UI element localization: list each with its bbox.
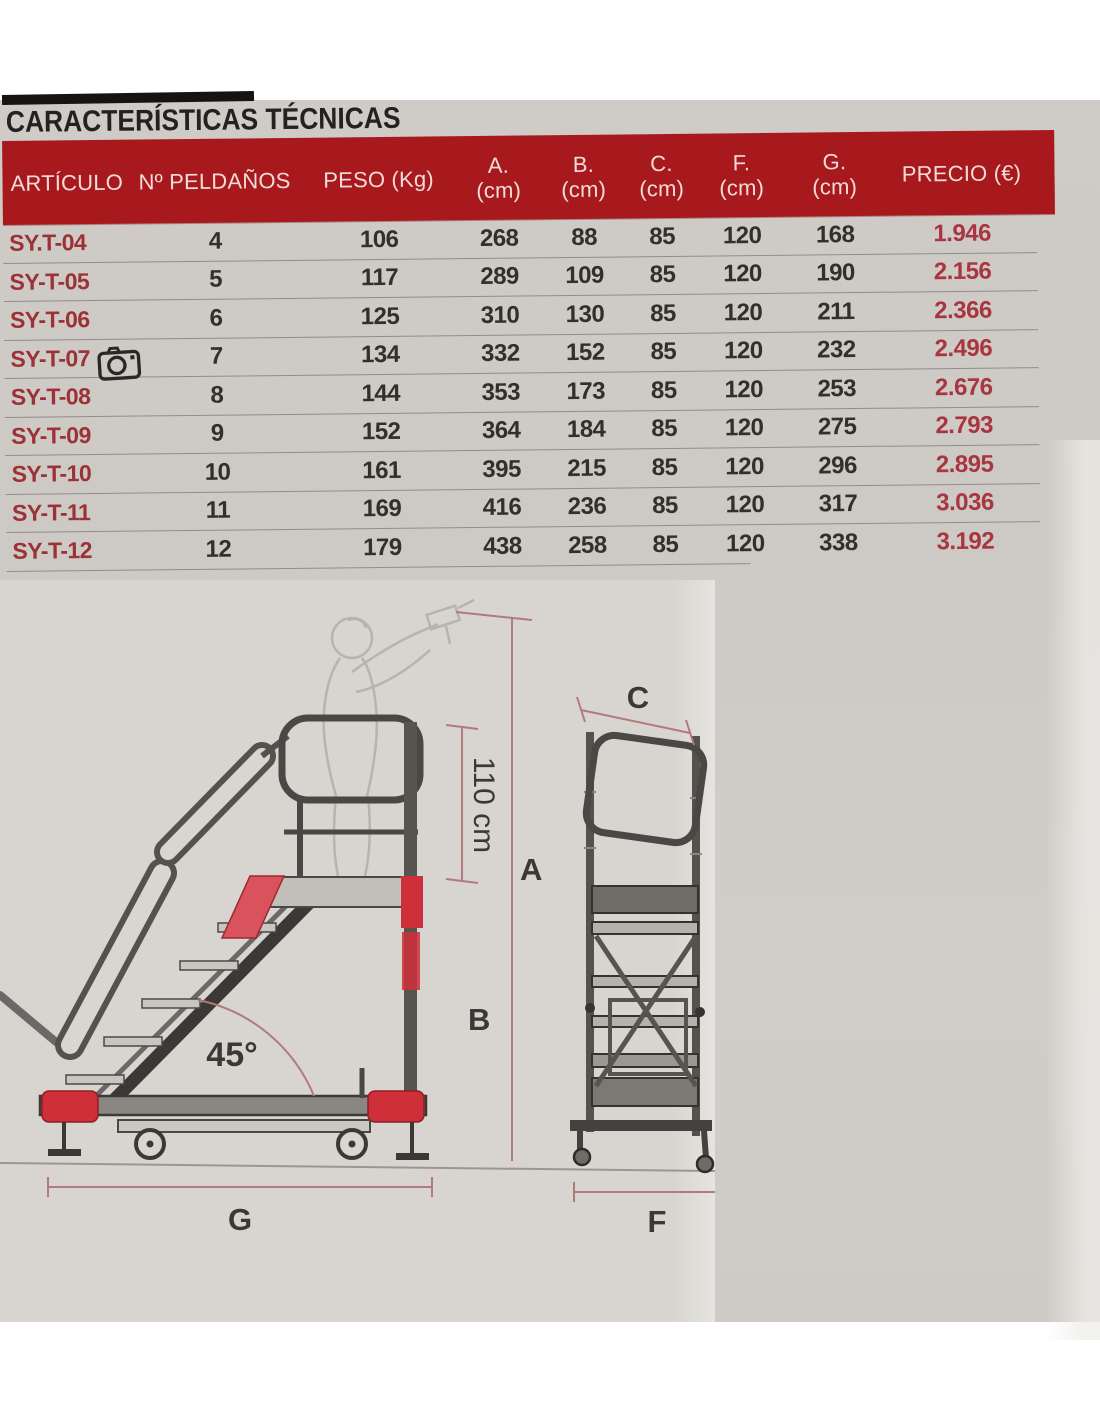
header-peso: PESO (Kg) — [304, 136, 453, 222]
page-edge-highlight — [1046, 440, 1100, 1340]
angle-label: 45° — [206, 1036, 257, 1074]
caster-wheels — [136, 1130, 366, 1158]
dim-a-label: A — [520, 852, 542, 887]
ground-line — [0, 1163, 715, 1171]
page-title: CARACTERÍSTICAS TÉCNICAS — [6, 102, 401, 140]
table-body: SY.T-04 4 106 268 88 85 120 168 1.946 SY… — [3, 214, 1047, 570]
rear-view — [570, 732, 713, 1172]
header-peldanos: Nº PELDAÑOS — [124, 138, 305, 224]
dim-f-label: F — [648, 1204, 667, 1239]
person-figure — [324, 600, 474, 876]
red-base-left — [42, 1091, 98, 1122]
table-header-row: ARTÍCULO Nº PELDAÑOS PESO (Kg) A.(cm) B.… — [2, 130, 1055, 225]
header-b: B.(cm) — [544, 134, 623, 219]
dimension-labels: A B C F G 45° 110 cm — [206, 680, 666, 1239]
cell-articulo: SY.T-04 — [3, 229, 125, 257]
catalog-photo: CARACTERÍSTICAS TÉCNICAS ARTÍCULO Nº PEL… — [0, 100, 1100, 1322]
header-c: C.(cm) — [622, 134, 701, 219]
header-precio: PRECIO (€) — [886, 130, 1037, 216]
red-post-block — [401, 876, 423, 928]
red-base-right — [368, 1091, 424, 1122]
ladder-diagram-svg: A B C F G 45° 110 cm — [0, 580, 715, 1322]
header-articulo: ARTÍCULO — [2, 140, 125, 225]
rear-guardrail-loop — [584, 733, 707, 845]
technical-drawing: A B C F G 45° 110 cm — [0, 580, 715, 1322]
header-g: G.(cm) — [782, 132, 887, 217]
dim-b-label: B — [468, 1002, 490, 1037]
side-view — [0, 718, 429, 1160]
header-a: A.(cm) — [452, 135, 545, 220]
height-110cm-label: 110 cm — [467, 757, 500, 853]
dim-c-label: C — [627, 680, 649, 715]
dim-g-label: G — [228, 1202, 252, 1237]
header-f: F.(cm) — [700, 133, 783, 218]
